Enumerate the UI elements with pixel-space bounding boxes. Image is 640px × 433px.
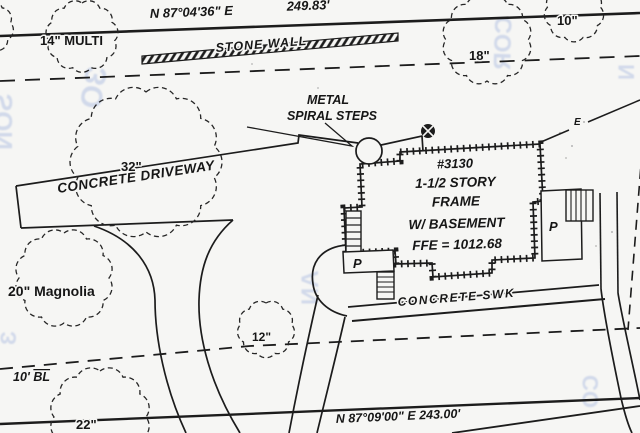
tree-label: 18": [469, 48, 490, 63]
electric-label: E: [574, 117, 581, 128]
survey-drawing: ИOƧOƐЯOƆИAOƆИƐ: [0, 0, 640, 433]
building-line-label: 10' BL: [13, 370, 50, 384]
tree-canopy: [16, 230, 112, 326]
building-setback-line-side: [628, 152, 640, 330]
bleed-text-artifact: Ɛ: [0, 331, 21, 345]
porch-right-steps: [566, 190, 593, 221]
front-walkway: [94, 220, 347, 433]
tree-label: 10": [557, 13, 578, 28]
porch-left-label: P: [353, 256, 362, 271]
house-number: #3130: [437, 156, 474, 172]
bleed-text-artifact: OƐ: [74, 64, 114, 111]
tree-label: 12": [252, 330, 271, 344]
spiral-steps-label-line1: METAL: [307, 93, 349, 107]
spiral-steps-label: METAL SPIRAL STEPS: [287, 93, 378, 123]
utility-symbol: [421, 124, 435, 138]
street-edge-line: [452, 406, 640, 433]
porch-right-label: P: [549, 219, 558, 234]
porch-left-steps: [377, 272, 394, 299]
house-basement: W/ BASEMENT: [408, 215, 506, 233]
porch-left: [343, 250, 394, 299]
tree-canopy: [51, 368, 149, 433]
spiral-steps-symbol: [356, 138, 382, 164]
bearing-top-text: N 87°04'36" E: [150, 3, 234, 21]
tree-label: 32": [121, 159, 142, 174]
building-setback-line-front: [0, 328, 640, 369]
bleed-text-artifact: И: [614, 64, 639, 80]
tree-label: 22": [76, 417, 97, 432]
house-ffe: FFE = 1012.68: [412, 236, 503, 253]
sidewalk-label: CONCRETE SWK: [397, 286, 516, 309]
spiral-steps-label-line2: SPIRAL STEPS: [287, 109, 378, 123]
side-walkway: [600, 192, 640, 433]
house-construction: FRAME: [432, 193, 481, 209]
house-stories: 1-1/2 STORY: [415, 174, 498, 191]
tree-label: 14" MULTI: [40, 33, 103, 48]
electric-service-line: [541, 100, 640, 142]
scanned-survey-plat: ИOƧOƐЯOƆИAOƆИƐ: [0, 0, 640, 433]
bearing-top: N 87°04'36" E 249.83': [149, 0, 330, 21]
tree-canopy: [443, 0, 531, 84]
bleed-text-artifact: ИOƧ: [0, 94, 18, 150]
tree-label: 20" Magnolia: [8, 283, 95, 299]
bleed-text-artifact: OƆ: [578, 375, 603, 408]
bearing-top-distance: 249.83': [285, 0, 330, 14]
tree-canopy: [0, 0, 13, 54]
